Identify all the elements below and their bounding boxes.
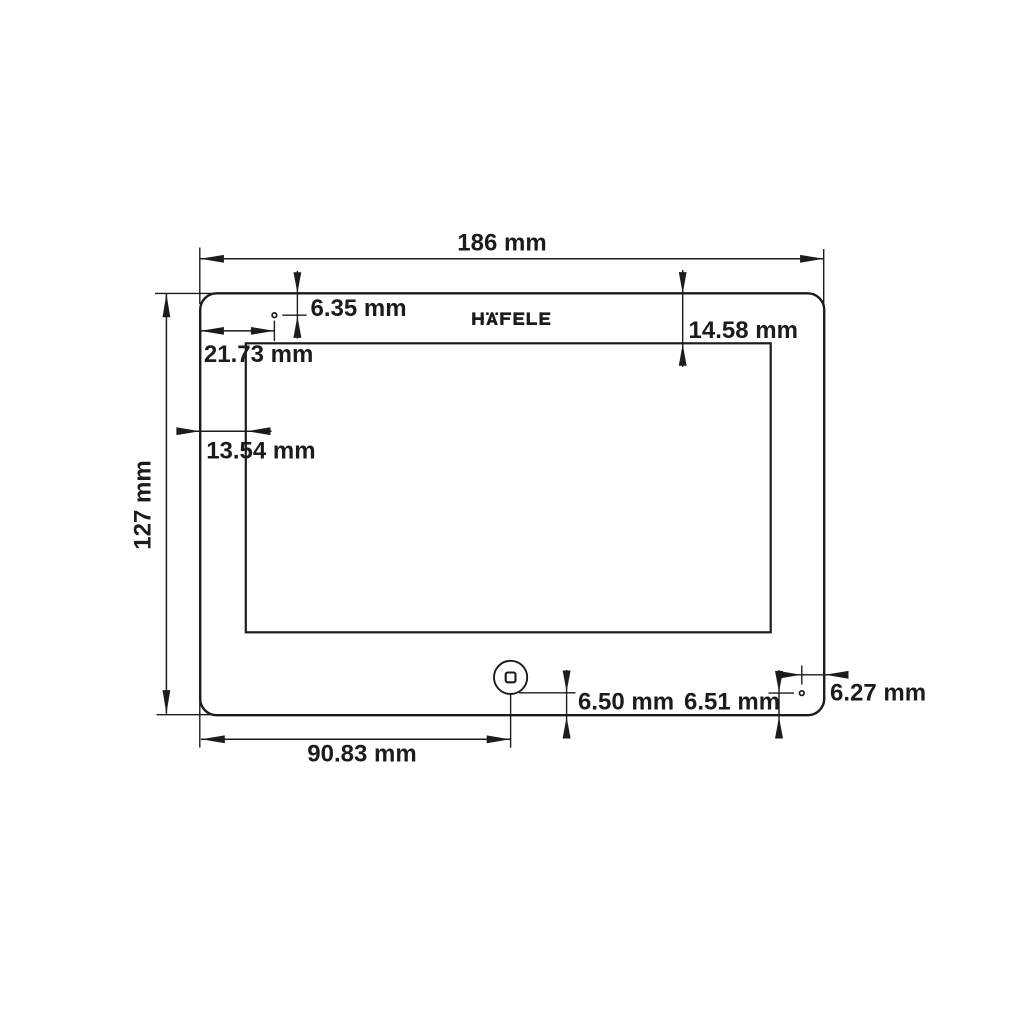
svg-text:6.50 mm: 6.50 mm: [578, 689, 674, 716]
svg-text:6.51 mm: 6.51 mm: [684, 689, 780, 716]
svg-text:14.58 mm: 14.58 mm: [689, 317, 798, 344]
svg-text:186 mm: 186 mm: [457, 230, 546, 257]
svg-text:127 mm: 127 mm: [129, 460, 156, 549]
svg-text:6.35 mm: 6.35 mm: [311, 295, 407, 322]
svg-text:90.83 mm: 90.83 mm: [307, 741, 416, 768]
svg-text:13.54 mm: 13.54 mm: [206, 438, 315, 465]
svg-text:21.73 mm: 21.73 mm: [204, 341, 313, 368]
svg-text:6.27 mm: 6.27 mm: [830, 680, 926, 707]
